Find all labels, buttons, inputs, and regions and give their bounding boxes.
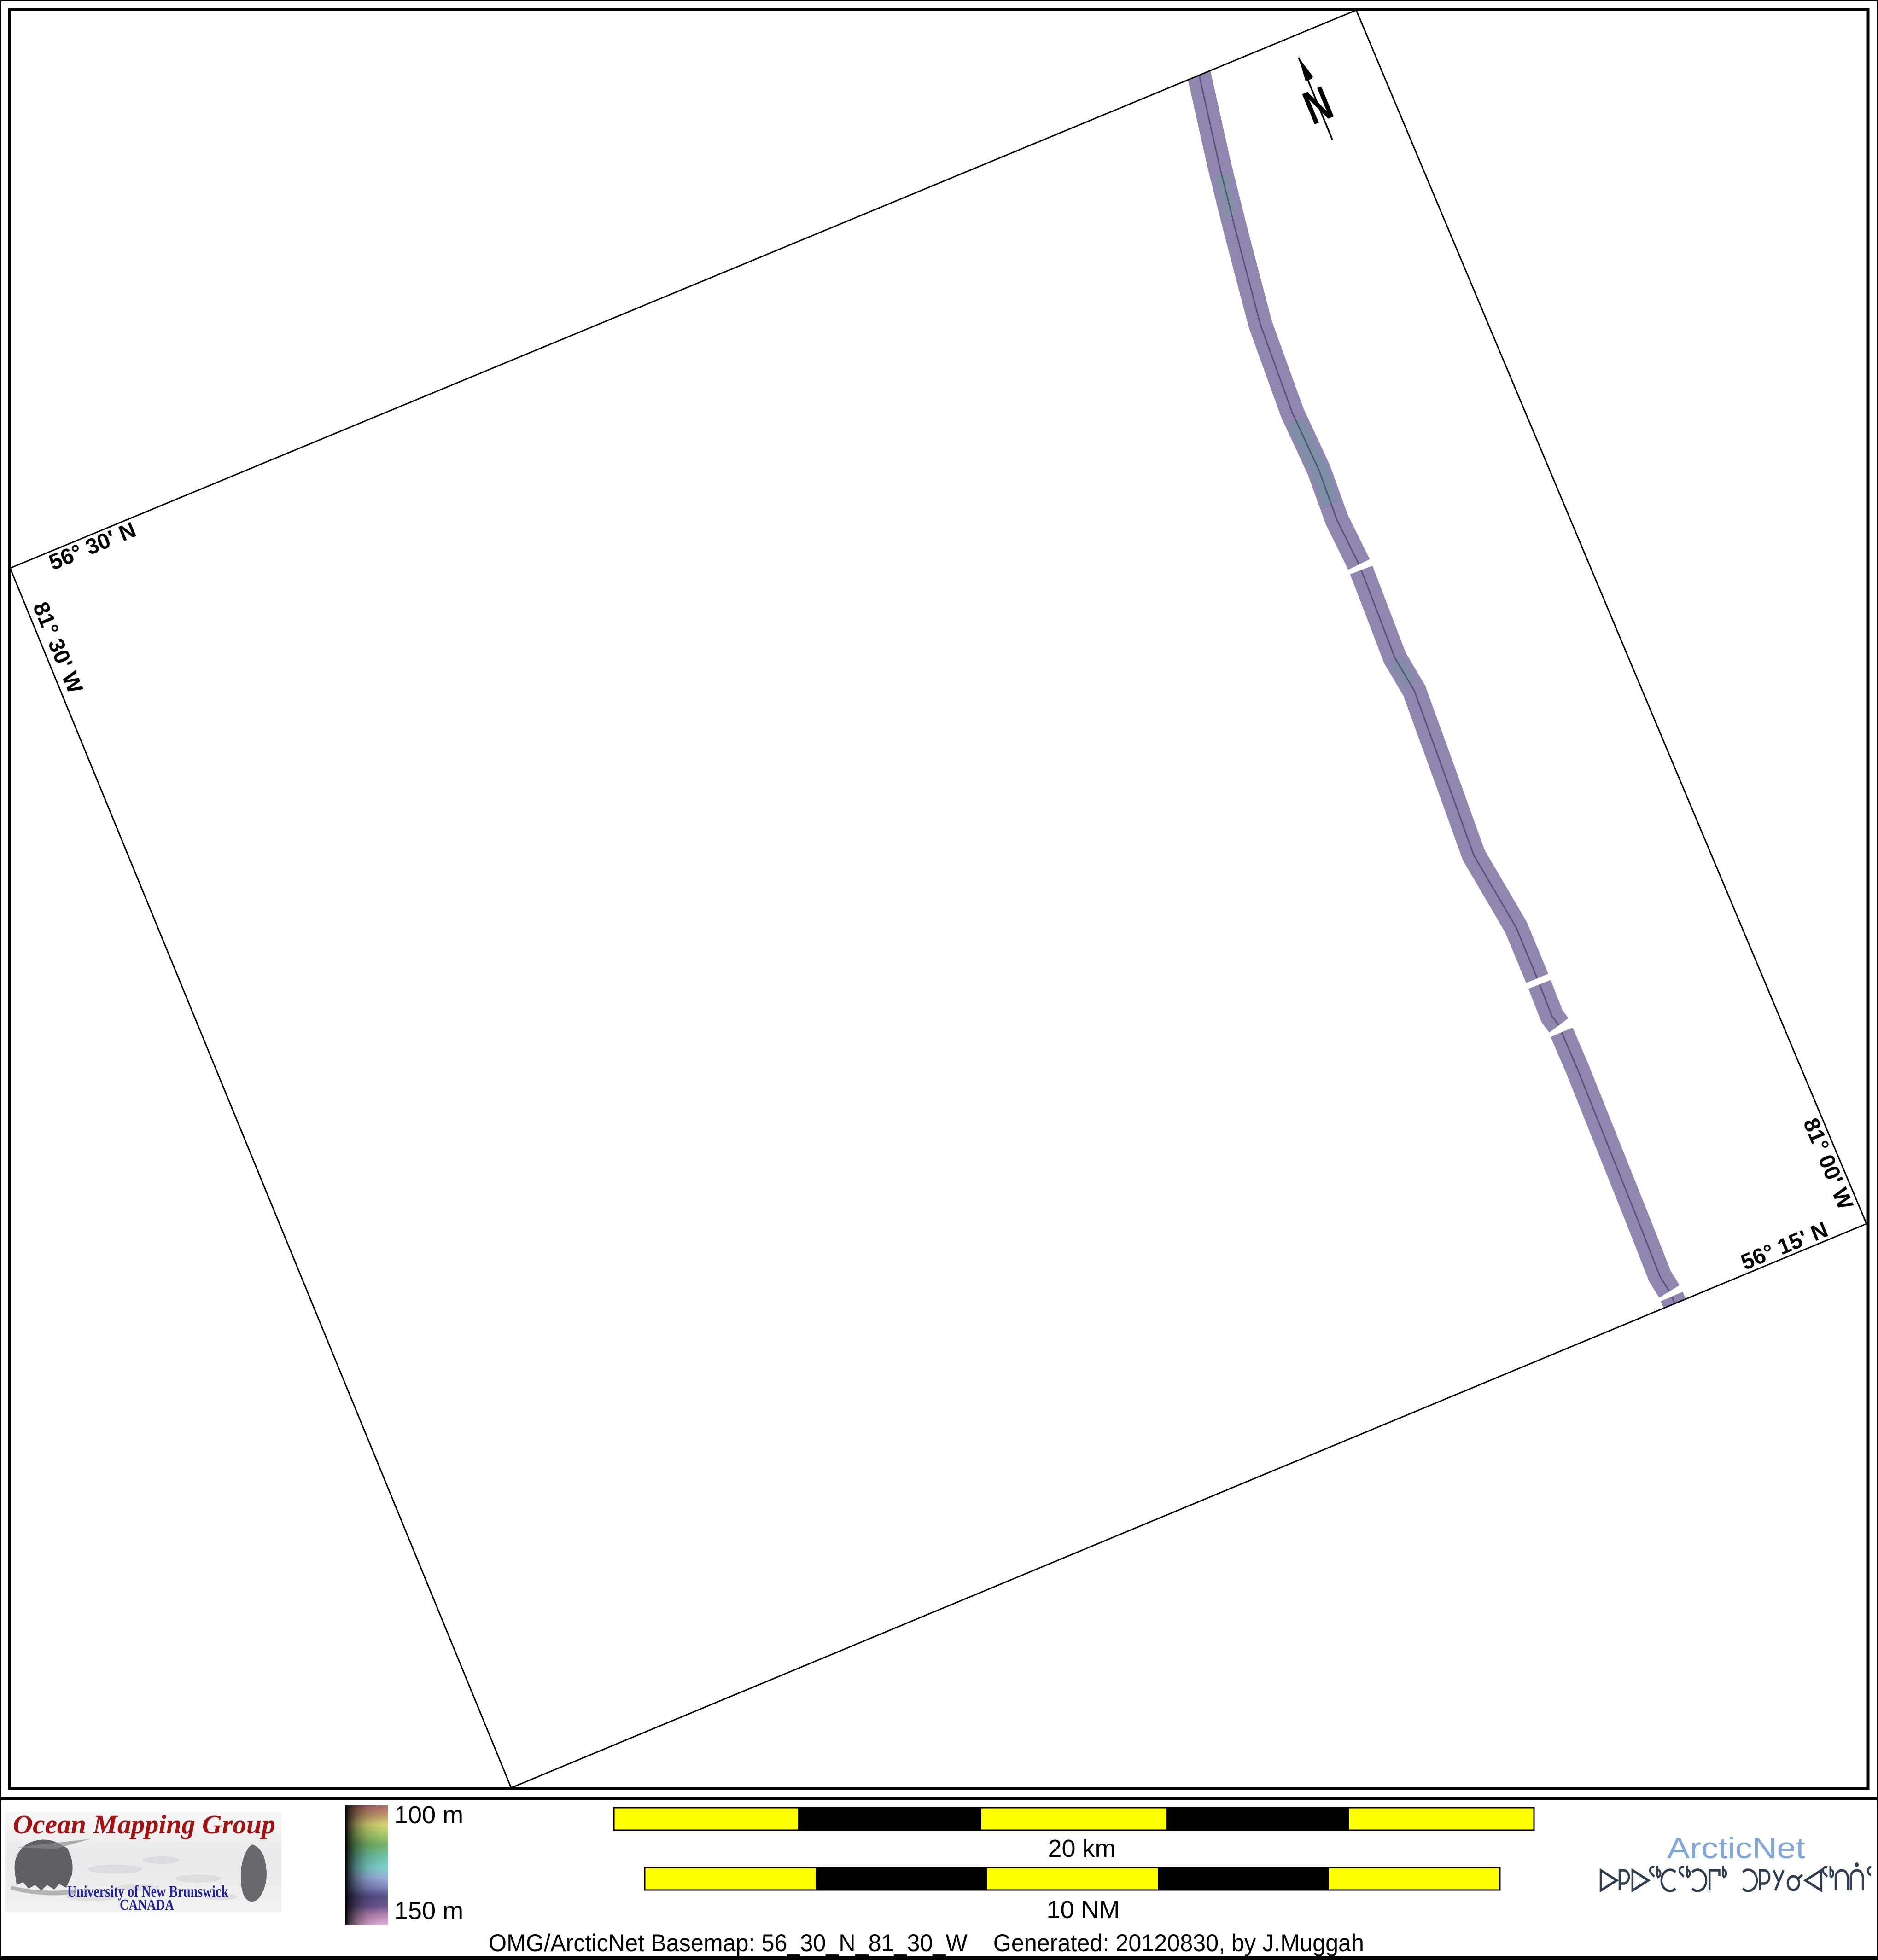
- svg-text:150 m: 150 m: [394, 1897, 463, 1925]
- svg-text:20 km: 20 km: [1048, 1835, 1115, 1862]
- svg-text:Ocean Mapping Group: Ocean Mapping Group: [13, 1809, 275, 1839]
- svg-text:CANADA: CANADA: [120, 1896, 174, 1913]
- svg-text:100 m: 100 m: [394, 1801, 463, 1829]
- svg-text:10 NM: 10 NM: [1046, 1896, 1120, 1924]
- svg-text:ArcticNet: ArcticNet: [1667, 1832, 1805, 1865]
- svg-text:OMG/ArcticNet Basemap: 56_30_N: OMG/ArcticNet Basemap: 56_30_N_81_30_W G…: [489, 1930, 1364, 1957]
